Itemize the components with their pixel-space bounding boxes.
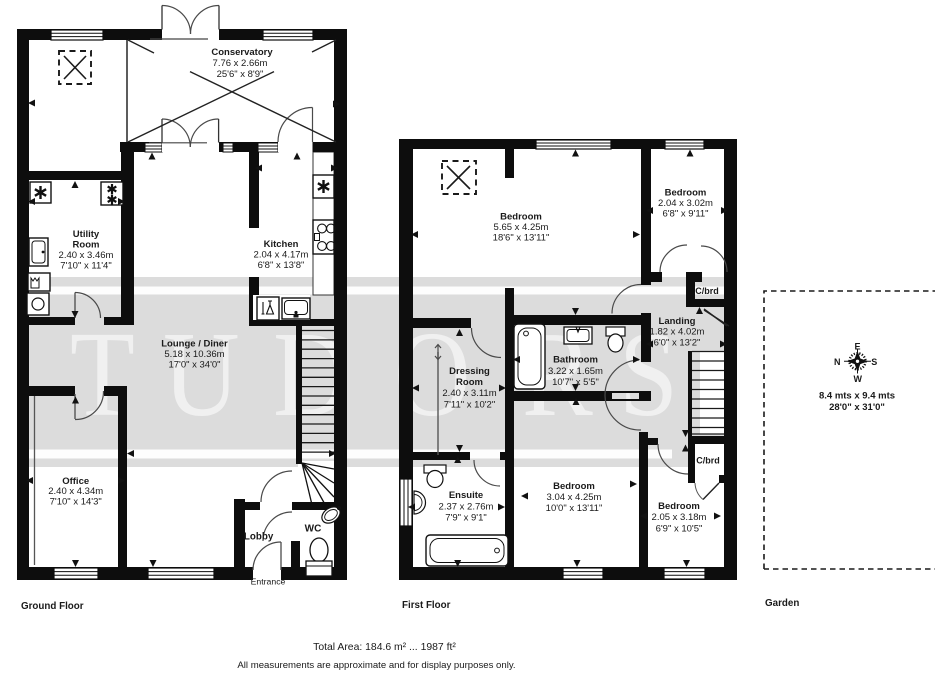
svg-text:Lounge / Diner: Lounge / Diner	[161, 339, 228, 350]
svg-text:Ground Floor: Ground Floor	[21, 601, 84, 612]
svg-text:18'6" x 13'11": 18'6" x 13'11"	[493, 233, 550, 244]
svg-text:2.37 x 2.76m: 2.37 x 2.76m	[439, 502, 494, 513]
svg-text:Total Area: 184.6 m² ... 1987: Total Area: 184.6 m² ... 1987 ft²	[313, 642, 456, 653]
svg-text:8.4 mts x 9.4 mts: 8.4 mts x 9.4 mts	[819, 391, 895, 402]
svg-text:All measurements are approxima: All measurements are approximate and for…	[237, 660, 515, 671]
svg-text:2.04 x 4.17m: 2.04 x 4.17m	[254, 250, 309, 261]
svg-text:W: W	[854, 374, 863, 384]
svg-text:Dressing: Dressing	[449, 366, 490, 377]
svg-text:6'9" x 10'5": 6'9" x 10'5"	[656, 524, 703, 535]
svg-text:17'0" x 34'0": 17'0" x 34'0"	[168, 360, 220, 371]
svg-text:Bedroom: Bedroom	[553, 481, 595, 492]
svg-text:C/brd: C/brd	[696, 456, 720, 466]
svg-text:Room: Room	[73, 240, 100, 251]
svg-text:2.40 x 4.34m: 2.40 x 4.34m	[48, 486, 103, 497]
svg-text:5.65 x 4.25m: 5.65 x 4.25m	[494, 222, 549, 233]
svg-text:7'10" x 11'4": 7'10" x 11'4"	[60, 261, 111, 272]
svg-text:Bedroom: Bedroom	[658, 501, 700, 512]
svg-text:7.76 x 2.66m: 7.76 x 2.66m	[213, 58, 268, 69]
svg-text:7'11" x 10'2": 7'11" x 10'2"	[444, 400, 495, 411]
svg-text:3.22 x 1.65m: 3.22 x 1.65m	[548, 366, 603, 377]
svg-text:WC: WC	[305, 524, 322, 535]
svg-text:Garden: Garden	[765, 598, 799, 609]
svg-text:Utility: Utility	[73, 229, 100, 240]
svg-text:Bathroom: Bathroom	[553, 355, 598, 366]
svg-text:Kitchen: Kitchen	[264, 239, 299, 250]
svg-text:1.82 x 4.02m: 1.82 x 4.02m	[650, 327, 705, 338]
svg-text:Room: Room	[456, 377, 483, 388]
svg-text:2.40 x 3.46m: 2.40 x 3.46m	[59, 250, 114, 261]
svg-text:5.18 x 10.36m: 5.18 x 10.36m	[164, 349, 224, 360]
svg-text:28'0" x 31'0": 28'0" x 31'0"	[829, 402, 885, 413]
svg-text:E: E	[854, 342, 860, 352]
svg-text:2.04 x 3.02m: 2.04 x 3.02m	[658, 198, 713, 209]
svg-text:3.04 x 4.25m: 3.04 x 4.25m	[547, 492, 602, 503]
svg-text:Bedroom: Bedroom	[665, 188, 707, 199]
svg-text:6'8" x 9'11": 6'8" x 9'11"	[662, 209, 708, 220]
svg-text:2.05 x 3.18m: 2.05 x 3.18m	[652, 512, 707, 523]
svg-text:C/brd: C/brd	[695, 286, 719, 296]
svg-text:6'8" x 13'8": 6'8" x 13'8"	[258, 260, 305, 271]
svg-text:7'10" x 14'3": 7'10" x 14'3"	[50, 497, 102, 508]
svg-text:S: S	[871, 357, 877, 367]
svg-text:Bedroom: Bedroom	[500, 212, 542, 223]
svg-text:10'0" x 13'11": 10'0" x 13'11"	[546, 503, 603, 514]
svg-text:25'6" x 8'9": 25'6" x 8'9"	[217, 69, 264, 80]
svg-text:6'0" x 13'2": 6'0" x 13'2"	[654, 338, 701, 349]
svg-text:Landing: Landing	[659, 316, 696, 327]
svg-text:N: N	[834, 357, 841, 367]
svg-text:Entrance: Entrance	[251, 577, 286, 587]
svg-text:First Floor: First Floor	[402, 600, 451, 611]
svg-text:Ensuite: Ensuite	[449, 490, 483, 501]
svg-text:2.40 x 3.11m: 2.40 x 3.11m	[442, 388, 496, 399]
svg-text:Conservatory: Conservatory	[211, 47, 273, 58]
svg-text:7'9" x 9'1": 7'9" x 9'1"	[445, 513, 487, 524]
svg-text:Lobby: Lobby	[244, 532, 274, 543]
